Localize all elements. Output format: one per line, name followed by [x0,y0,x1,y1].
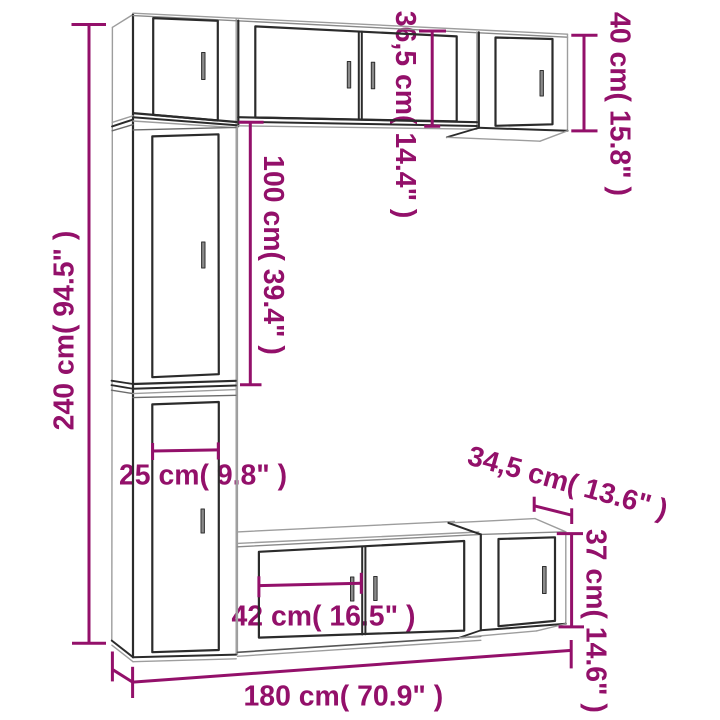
svg-text:240 cm( 94.5" ): 240 cm( 94.5" ) [48,231,80,431]
svg-text:180 cm( 70.9" ): 180 cm( 70.9" ) [244,680,444,712]
svg-text:40 cm( 15.8" ): 40 cm( 15.8" ) [603,12,635,196]
svg-text:25 cm( 9.8" ): 25 cm( 9.8" ) [119,459,287,491]
svg-text:36,5 cm( 14.4" ): 36,5 cm( 14.4" ) [389,11,421,219]
svg-text:37 cm( 14.6" ): 37 cm( 14.6" ) [579,529,611,713]
svg-text:100 cm( 39.4" ): 100 cm( 39.4" ) [257,155,289,355]
